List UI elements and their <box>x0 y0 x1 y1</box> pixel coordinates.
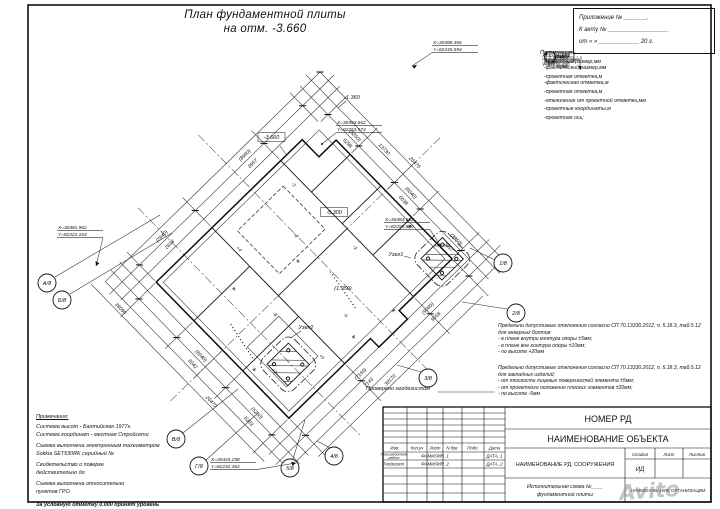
tolerance-item: - от проектного положения плоских элемен… <box>498 385 710 392</box>
node-label: Узел1 <box>388 252 404 258</box>
svg-text:8957: 8957 <box>247 158 259 170</box>
internal-walls <box>156 123 452 418</box>
legend-item-axis: 2 -проектная ось; <box>540 115 714 121</box>
appendix-line: К акту № __________________ <box>579 24 709 36</box>
col-header: N док. <box>446 446 458 451</box>
doc-number: НОМЕР РД <box>585 414 632 424</box>
legend-item-elevation: (-1.300) -1.301 -проектная отметка,м -фа… <box>540 74 714 86</box>
svg-text:6042: 6042 <box>186 358 198 370</box>
legend-item-coordinates: Х=30483.662 Y=82255.890 -проектные коорд… <box>540 106 714 112</box>
axis-bubble: 1/8 <box>494 254 512 272</box>
tolerance-item: - в плане вне контура опоры ±10мм; <box>498 343 710 350</box>
notes-footer: За условную отметку 0.000 принят уровень… <box>36 501 178 509</box>
svg-text:-8: -8 <box>272 311 279 318</box>
tolerance-item: - от плоскости лицевых поверхностей элем… <box>498 378 710 385</box>
svg-text:Х=30443.258: Х=30443.258 <box>210 457 240 463</box>
appendix-line: Приложение № _______. <box>579 12 709 24</box>
svg-text:Y=82255.890: Y=82255.890 <box>385 224 414 230</box>
svg-text:-5: -5 <box>342 312 349 319</box>
note-line: Система высот - Балтийская 1977г. <box>36 423 178 431</box>
col-header: Лист <box>428 446 440 451</box>
note-line: Система координат - местная Стройсети <box>36 431 178 439</box>
col-header: Кол.уч <box>411 446 425 451</box>
svg-text:-3: -3 <box>290 181 297 188</box>
object-name: НАИМЕНОВАНИЕ ОБЪЕКТА <box>547 434 668 444</box>
notes-header: Примечания: <box>36 413 178 421</box>
survey-point-icon: * <box>348 333 357 342</box>
axis-bubble: А/8 <box>38 274 56 292</box>
svg-text:Y=82232.462: Y=82232.462 <box>211 464 240 470</box>
axis-symbol-icon: 2 <box>540 50 588 64</box>
pit-outline <box>237 186 325 274</box>
elevation-label: -3.660 <box>264 135 281 141</box>
drawing-sheet: * * * * * * -3 +2 -5 +4 -8 +2 -3 +5 2647… <box>0 0 720 509</box>
elevation-label: -5.300 <box>326 210 343 216</box>
drawing-title-line2: на отм. -3.660 <box>150 22 380 36</box>
legend-label: -отклонение от проектной отметки,мм <box>540 98 646 104</box>
role-label: Геодезист <box>384 462 405 467</box>
svg-text:Х=30483.662: Х=30483.662 <box>384 217 414 223</box>
svg-text:Y=82222.164: Y=82222.164 <box>58 232 87 238</box>
tolerance-text: для анкерных болтов: <box>498 330 710 337</box>
svg-text:+2: +2 <box>271 367 279 375</box>
tolerance-paragraph-embeds: Предельно допустимые отклонения согласно… <box>498 365 710 398</box>
tolerance-text: Предельно допустимые отклонения согласно… <box>498 323 710 330</box>
svg-text:4/8: 4/8 <box>330 454 339 460</box>
title-block: НОМЕР РД НАИМЕНОВАНИЕ ОБЪЕКТА НАИМЕНОВАН… <box>381 407 711 505</box>
legend: Примечания: (5250) 5298 -проектный разме… <box>540 50 714 124</box>
note-line: пунктов ГРО <box>36 488 178 496</box>
note-line: Свидетельство о поверке <box>36 461 178 469</box>
general-notes: Примечания: Система высот - Балтийская 1… <box>36 413 178 509</box>
col-header: Подп. <box>467 446 478 451</box>
svg-text:Г/8: Г/8 <box>195 464 204 470</box>
stage-value: ИД <box>636 467 645 473</box>
axis-bubble: 3/8 <box>419 369 437 387</box>
svg-text:+2: +2 <box>292 232 300 240</box>
axis-bubble: Г/8 <box>190 457 208 475</box>
svg-text:1/8: 1/8 <box>499 261 508 267</box>
note-line: Съемка выполнена электронным тахеометром <box>36 442 178 450</box>
drawing-title: План фундаментной плиты на отм. -3.660 <box>150 8 380 36</box>
date-value: ДАТА_2 <box>485 462 503 467</box>
legend-label: -проектная отметка,м <box>540 89 602 95</box>
axis-bubble: Б/8 <box>53 291 71 309</box>
svg-text:+5: +5 <box>318 353 326 361</box>
svg-text:2: 2 <box>548 55 552 60</box>
svg-text:5/8: 5/8 <box>286 466 295 472</box>
svg-text:Х=30481.962: Х=30481.962 <box>57 225 87 231</box>
legend-item-deviation: +3 -отклонение от проектной отметки,мм <box>540 98 714 104</box>
svg-text:+4: +4 <box>235 245 243 253</box>
tolerance-text: Предельно допустимые отклонения согласно… <box>498 365 710 372</box>
elevation-label: (1.950) <box>334 286 352 292</box>
legend-item-boxed-elevation: -5.300 -проектная отметка,м <box>540 89 714 95</box>
axis-bubble: 2/8 <box>507 304 525 322</box>
col-header: Дата <box>488 446 501 451</box>
col-header: Изм. <box>390 446 399 451</box>
axis-bubble: 5/8 <box>281 459 299 477</box>
rd-name: НАИМЕНОВАНИЕ РД, СООРУЖЕНИЯ <box>516 462 615 468</box>
elevation-label: -1.360 <box>344 95 361 101</box>
stage-header: Стадия <box>632 452 649 457</box>
svg-text:3/8: 3/8 <box>424 376 433 382</box>
person-name: ФАМИЛИЯ_1 <box>421 454 449 459</box>
svg-text:Y=82253.574: Y=82253.574 <box>337 127 366 133</box>
node-label: Узел2 <box>298 325 314 331</box>
note-line: Sokkia SET530RK серийный № <box>36 450 178 458</box>
note-line: действительно до <box>36 469 178 477</box>
scheme-name: Исполнительная схема №____ <box>527 484 603 490</box>
coordinate-callout: Х=30498.366 Y=82245.594 <box>412 40 478 69</box>
svg-text:2/8: 2/8 <box>511 311 521 317</box>
survey-point-icon: * <box>388 307 397 316</box>
tolerance-paragraph-anchors: Предельно допустимые отклонения согласно… <box>498 323 710 356</box>
svg-text:-3: -3 <box>352 244 359 251</box>
note-line: Съемка выполнена относительно <box>36 480 178 488</box>
axis-bubble: 4/8 <box>325 447 343 465</box>
slab-outline <box>156 123 460 427</box>
svg-text:Х=30493.662: Х=30493.662 <box>336 120 366 126</box>
svg-text:А/8: А/8 <box>42 281 52 287</box>
tolerance-item: - в плане внутри контура опоры ±5мм; <box>498 336 710 343</box>
tolerance-item: - по высоте -5мм <box>498 391 710 398</box>
sheet-header: Лист <box>662 452 674 457</box>
checked-by-label: Проверено геодезистом <box>366 386 430 392</box>
appendix-box: Приложение № _______. К акту № _________… <box>573 8 715 54</box>
svg-text:(6040): (6040) <box>193 349 208 364</box>
legend-label: -проектные координаты,м <box>540 106 611 112</box>
scheme-name: фундаментной плиты <box>537 491 593 498</box>
svg-text:Б/8: Б/8 <box>58 298 67 304</box>
tolerance-notes: Предельно допустимые отклонения согласно… <box>498 323 710 407</box>
coordinate-callouts: Х=30498.366 Y=82245.594 Х=30493.662 Y=82… <box>57 40 478 470</box>
svg-text:Х=30498.366: Х=30498.366 <box>432 40 462 46</box>
date-value: ДАТА_1 <box>485 454 503 459</box>
svg-text:Y=82245.594: Y=82245.594 <box>433 47 462 53</box>
survey-point-icon: * <box>292 258 301 267</box>
legend-label: -фактическая отметка,м <box>544 80 609 86</box>
sheets-header: Листов <box>688 452 705 457</box>
role-label: работ <box>387 456 399 460</box>
coordinate-callout: Х=30481.962 Y=82222.164 <box>57 225 103 266</box>
appendix-line: от « » ____________ 20 г. <box>579 36 709 48</box>
drawing-title-line1: План фундаментной плиты <box>150 8 380 22</box>
person-name: ФАМИЛИЯ_2 <box>421 462 449 467</box>
legend-label: -проектная ось; <box>540 115 584 121</box>
svg-text:9058: 9058 <box>430 311 442 323</box>
avito-watermark: Avito <box>617 477 681 505</box>
survey-point-icon: * <box>228 285 237 294</box>
tolerance-item: - по высоте +20мм <box>498 349 710 356</box>
